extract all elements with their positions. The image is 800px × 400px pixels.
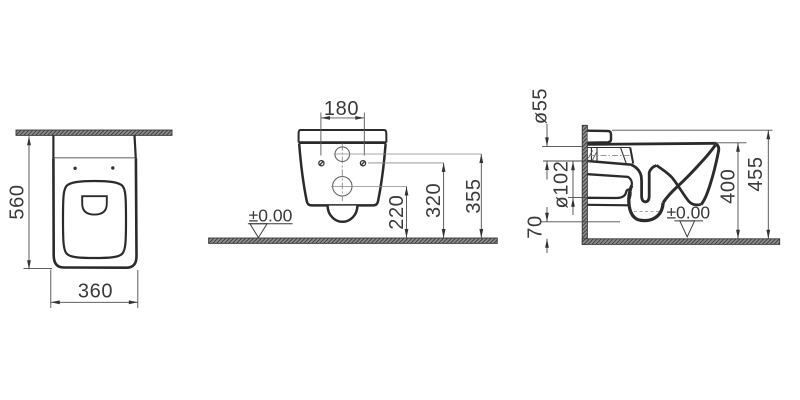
svg-text:560: 560 (7, 184, 29, 219)
svg-text:180: 180 (324, 98, 359, 120)
svg-text:455: 455 (745, 156, 767, 191)
svg-text:70: 70 (525, 215, 547, 238)
svg-text:±0.00: ±0.00 (249, 205, 293, 225)
svg-text:400: 400 (718, 169, 740, 204)
svg-text:355: 355 (463, 178, 485, 213)
svg-text:220: 220 (386, 195, 408, 230)
svg-text:ø55: ø55 (530, 88, 552, 124)
svg-text:320: 320 (423, 183, 445, 218)
svg-text:±0.00: ±0.00 (666, 202, 710, 222)
svg-text:360: 360 (78, 281, 113, 303)
svg-text:ø102: ø102 (551, 161, 573, 209)
